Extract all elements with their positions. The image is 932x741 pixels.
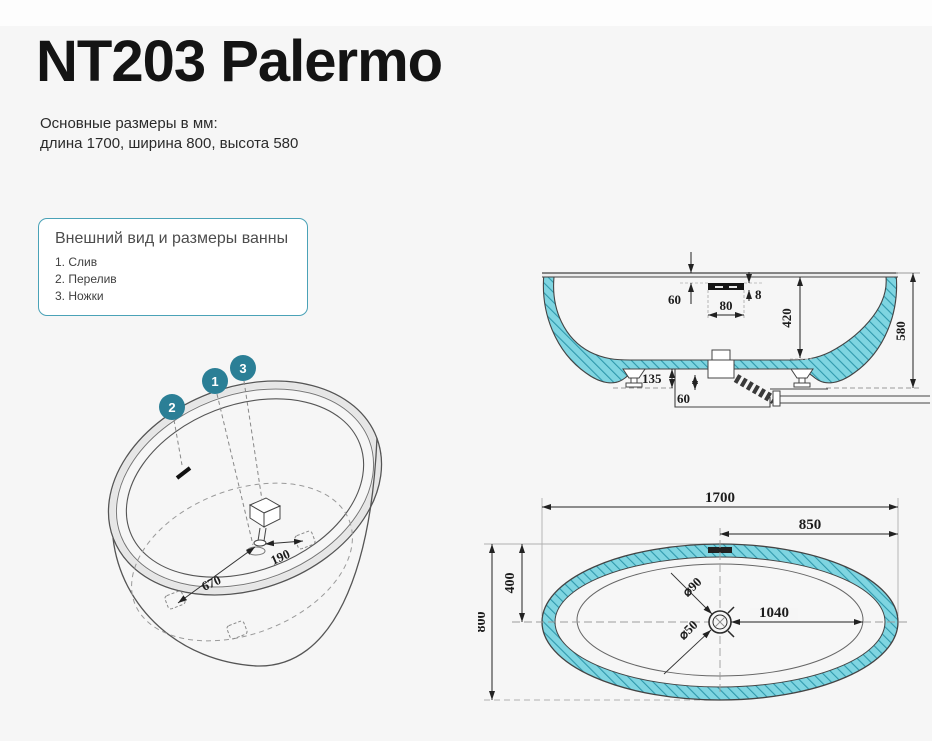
callout-drain: 1	[202, 368, 228, 394]
overflow-slot	[177, 468, 190, 478]
tub-body-outline	[113, 438, 377, 666]
legend-item-drain: 1. Слив	[55, 254, 295, 271]
top-dim-850: 850	[799, 517, 822, 533]
top-dim-1040: 1040	[759, 605, 789, 621]
tub-rim-mid	[88, 354, 403, 623]
page-subtitle: Основные размеры в мм: длина 1700, ширин…	[40, 114, 298, 154]
legend-box: Внешний вид и размеры ванны 1. Слив 2. П…	[38, 218, 308, 316]
iso-dim-190: 190	[268, 546, 292, 568]
callout-feet: 3	[230, 355, 256, 381]
top-dim-1700: 1700	[705, 490, 735, 506]
top-dim-800: 800	[478, 612, 489, 633]
tub-footprint-dashed	[109, 454, 375, 671]
legend-item-overflow: 2. Перелив	[55, 271, 295, 288]
rim-band	[542, 273, 898, 277]
side-dim-80: 80	[720, 298, 733, 313]
subtitle-line-1: Основные размеры в мм:	[40, 114, 298, 134]
callout-overflow: 2	[159, 394, 185, 420]
side-dim-580: 580	[893, 321, 908, 341]
drain-fitting	[250, 498, 280, 546]
legend-title: Внешний вид и размеры ванны	[55, 230, 295, 248]
legend-item-feet: 3. Ножки	[55, 288, 295, 305]
overflow-slot-section	[708, 283, 744, 290]
leader-feet	[244, 381, 262, 500]
page-title: NT203 Palermo	[36, 28, 442, 95]
top-plan-view: 1700 850 400 800 1040 ⌀90 ⌀50	[478, 478, 932, 734]
side-dim-420: 420	[779, 308, 794, 328]
callout-overflow-num: 2	[168, 400, 175, 415]
subtitle-line-2: длина 1700, ширина 800, высота 580	[40, 134, 298, 154]
foot-dashed-3	[294, 530, 316, 550]
leader-drain	[217, 394, 253, 545]
iso-dim-line-190	[265, 541, 303, 544]
top-strip	[0, 0, 932, 26]
isometric-view: 670 190 2 1 3	[85, 340, 430, 675]
leader-overflow	[174, 420, 182, 465]
side-dim-60-bottom: 60	[677, 391, 690, 406]
side-dim-60-top: 60	[668, 292, 681, 307]
drain-flange	[712, 350, 730, 360]
foot-right	[791, 369, 813, 387]
side-section-view: 60 80 8 420 580 135 60	[528, 238, 932, 420]
side-dim-135: 135	[642, 371, 662, 386]
callout-feet-num: 3	[239, 361, 246, 376]
top-dim-400: 400	[503, 573, 518, 594]
drain-body	[708, 360, 734, 378]
callout-drain-num: 1	[211, 374, 218, 389]
pipe-coupler	[773, 391, 780, 406]
side-dim-8: 8	[755, 287, 762, 302]
drain-hose	[736, 378, 774, 400]
